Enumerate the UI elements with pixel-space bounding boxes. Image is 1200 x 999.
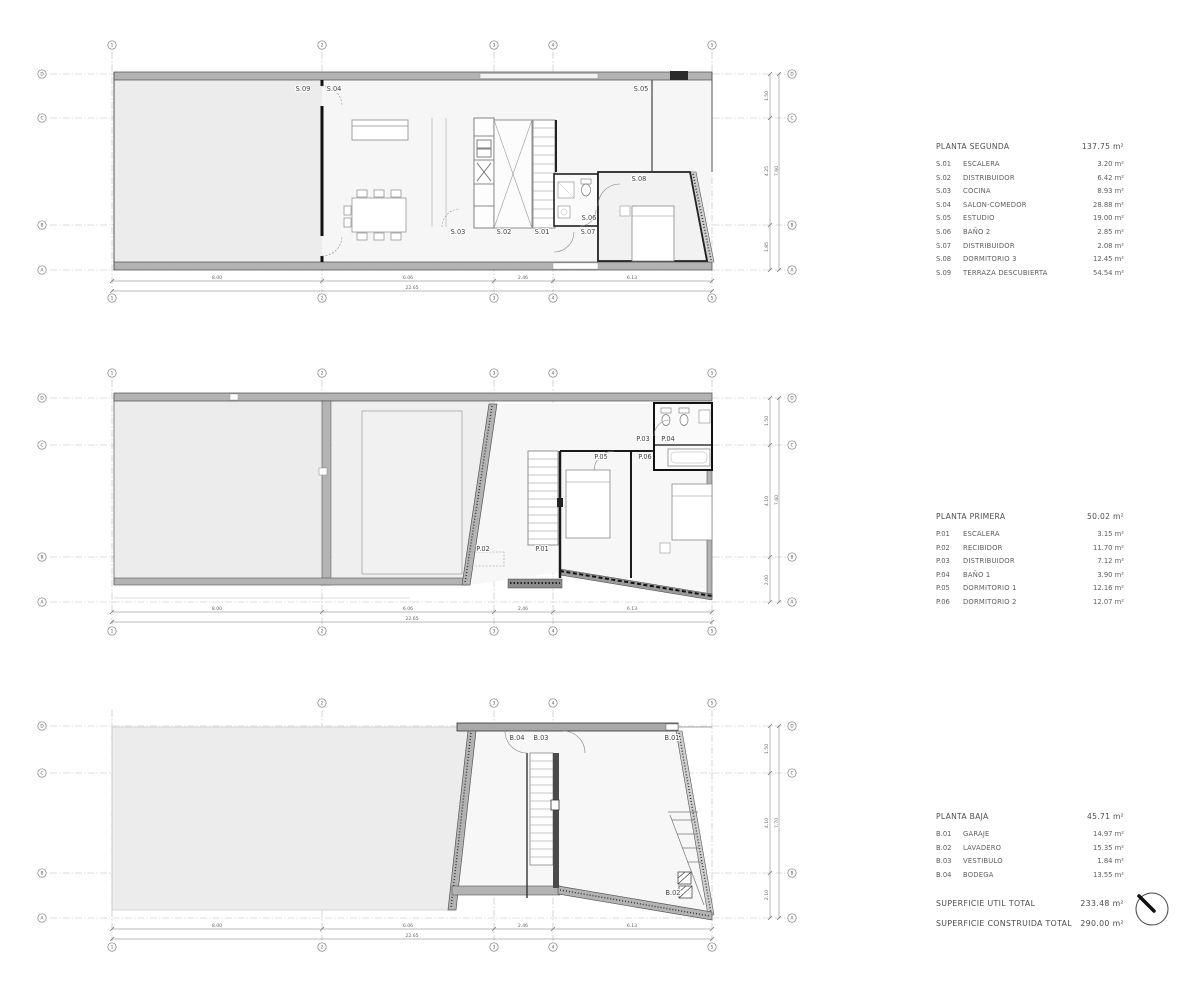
- legend-row: P.02RECIBIDOR11.70 m²: [936, 544, 1124, 558]
- legend-row-name: LAVADERO: [963, 844, 1093, 852]
- room-label-B.04: B.04: [509, 734, 524, 742]
- legend-row-name: SALON-COMEDOR: [963, 201, 1093, 209]
- roof-terrace-floor: [114, 393, 322, 585]
- legend-planta-primera: PLANTA PRIMERA 50.02 m² P.01ESCALERA3.15…: [936, 512, 1124, 612]
- grid-bubble-label-2: 2: [321, 629, 324, 635]
- dimension-label: 7.60: [774, 495, 780, 505]
- legend-row-code: B.01: [936, 830, 963, 838]
- legend-row-code: B.03: [936, 857, 963, 865]
- legend-row-name: BAÑO 1: [963, 571, 1097, 579]
- legend-row: S.06BAÑO 22.85 m²: [936, 228, 1124, 242]
- grid-bubble-label-A: A: [791, 600, 794, 606]
- courtyard-inner: [362, 411, 462, 574]
- legend-row: P.06DORMITORIO 212.07 m²: [936, 598, 1124, 612]
- bedroom-s08: [598, 172, 707, 261]
- grid-bubble-label-5: 5: [711, 629, 714, 635]
- plan-baja: B.04B.03B.01B.02 234512345DCBADCBA 8.006…: [38, 699, 796, 951]
- legend-row: P.04BAÑO 13.90 m²: [936, 571, 1124, 585]
- room-label-S.08: S.08: [632, 175, 647, 183]
- totals-block: SUPERFICIE UTIL TOTAL 233.48 m² SUPERFIC…: [936, 899, 1124, 939]
- legend-rows: B.01GARAJE14.97 m²B.02LAVADERO15.35 m²B.…: [936, 830, 1124, 884]
- legend-row: B.01GARAJE14.97 m²: [936, 830, 1124, 844]
- dimension-label: 2.46: [518, 606, 528, 612]
- grid-bubble-label-4: 4: [552, 945, 555, 951]
- legend-row-code: P.05: [936, 584, 963, 592]
- legend-row: P.03DISTRIBUIDOR7.12 m²: [936, 557, 1124, 571]
- total-util-label: SUPERFICIE UTIL TOTAL: [936, 899, 1035, 908]
- legend-row-area: 1.84 m²: [1097, 857, 1124, 865]
- north-arrow-icon: [1136, 893, 1168, 925]
- total-util-value: 233.48 m²: [1080, 899, 1124, 908]
- dimension-label: 6.13: [627, 275, 637, 281]
- room-label-B.01: B.01: [664, 734, 679, 742]
- legend-title: PLANTA PRIMERA: [936, 512, 1005, 521]
- room-label-P.03: P.03: [636, 435, 649, 443]
- grid-bubble-label-1: 1: [111, 296, 114, 302]
- legend-row-area: 2.08 m²: [1097, 242, 1124, 250]
- grid-bubble-label-5: 5: [711, 296, 714, 302]
- legend-row: S.01ESCALERA3.20 m²: [936, 160, 1124, 174]
- room-label-B.02: B.02: [665, 889, 680, 897]
- room-label-S.04: S.04: [327, 85, 342, 93]
- legend-row-name: GARAJE: [963, 830, 1093, 838]
- dimension-label: 7.60: [774, 166, 780, 176]
- legend-row-name: DISTRIBUIDOR: [963, 557, 1097, 565]
- legend-row-name: DISTRIBUIDOR: [963, 174, 1097, 182]
- dimension-label: 22.65: [405, 933, 418, 939]
- legend-row-name: BODEGA: [963, 871, 1093, 879]
- legend-title: PLANTA SEGUNDA: [936, 142, 1009, 151]
- legend-row-name: COCINA: [963, 187, 1097, 195]
- legend-row: S.09TERRAZA DESCUBIERTA54.54 m²: [936, 269, 1124, 283]
- grid-bubble-label-3: 3: [493, 945, 496, 951]
- total-construida-value: 290.00 m²: [1080, 919, 1124, 928]
- kitchen-counter: [474, 118, 494, 228]
- plan-primera: P.03P.04P.05P.06P.02P.01 1234512345DCBAD…: [38, 369, 796, 635]
- grid-bubble-label-B: B: [791, 223, 794, 229]
- room-label-S.07: S.07: [581, 228, 596, 236]
- legend-row-code: S.06: [936, 228, 963, 236]
- legend-row-area: 8.93 m²: [1097, 187, 1124, 195]
- legend-row-area: 19.00 m²: [1093, 214, 1124, 222]
- grid-bubble-label-2: 2: [321, 371, 324, 377]
- grid-bubble-label-A: A: [41, 600, 44, 606]
- room-label-S.09: S.09: [296, 85, 311, 93]
- dimension-label: 1.50: [764, 416, 770, 426]
- patio-floor: [112, 727, 470, 910]
- room-label-P.05: P.05: [594, 453, 607, 461]
- legend-row: S.08DORMITORIO 312.45 m²: [936, 255, 1124, 269]
- legend-row-area: 28.88 m²: [1093, 201, 1124, 209]
- dimension-label: 1.50: [764, 744, 770, 754]
- dimension-label: 8.00: [212, 923, 222, 929]
- legend-row-name: DISTRIBUIDOR: [963, 242, 1097, 250]
- legend-row: P.05DORMITORIO 112.16 m²: [936, 584, 1124, 598]
- legend-row-area: 54.54 m²: [1093, 269, 1124, 277]
- legend-row-area: 3.90 m²: [1097, 571, 1124, 579]
- legend-row-code: B.04: [936, 871, 963, 879]
- legend-row-code: S.02: [936, 174, 963, 182]
- legend-row-area: 3.15 m²: [1097, 530, 1124, 538]
- dimension-label: 6.06: [403, 923, 413, 929]
- legend-row-name: VESTIBULO: [963, 857, 1097, 865]
- legend-planta-segunda: PLANTA SEGUNDA 137.75 m² S.01ESCALERA3.2…: [936, 142, 1124, 282]
- grid-bubble-label-B: B: [41, 223, 44, 229]
- legend-row-area: 3.20 m²: [1097, 160, 1124, 168]
- grid-bubble-label-A: A: [791, 268, 794, 274]
- grid-bubble-label-5: 5: [711, 945, 714, 951]
- room-label-S.01: S.01: [535, 228, 550, 236]
- dimension-label: 4.25: [764, 166, 770, 176]
- legend-row-name: ESCALERA: [963, 530, 1097, 538]
- grid-bubble-label-3: 3: [493, 629, 496, 635]
- legend-row: S.07DISTRIBUIDOR2.08 m²: [936, 242, 1124, 256]
- dimension-label: 4.10: [764, 496, 770, 506]
- legend-total-area: 45.71 m²: [1087, 812, 1124, 821]
- legend-header: PLANTA SEGUNDA 137.75 m²: [936, 142, 1124, 151]
- total-util-row: SUPERFICIE UTIL TOTAL 233.48 m²: [936, 899, 1124, 919]
- grid-bubble-label-4: 4: [552, 43, 555, 49]
- legend-row: S.02DISTRIBUIDOR6.42 m²: [936, 174, 1124, 188]
- legend-row-code: S.07: [936, 242, 963, 250]
- room-label-P.02: P.02: [476, 545, 489, 553]
- legend-total-area: 137.75 m²: [1082, 142, 1124, 151]
- total-construida-row: SUPERFICIE CONSTRUIDA TOTAL 290.00 m²: [936, 919, 1124, 939]
- legend-row-code: P.04: [936, 571, 963, 579]
- grid-bubble-label-A: A: [791, 916, 794, 922]
- grid-bubble-label-3: 3: [493, 296, 496, 302]
- dimension-label: 6.13: [627, 606, 637, 612]
- legend-row-area: 15.35 m²: [1093, 844, 1124, 852]
- grid-bubble-label-B: B: [791, 871, 794, 877]
- grid-bubble-label-A: A: [41, 916, 44, 922]
- grid-bubble-label-4: 4: [552, 629, 555, 635]
- grid-bubble-label-C: C: [40, 443, 43, 449]
- grid-bubble-label-C: C: [790, 771, 793, 777]
- legend-row: B.04BODEGA13.55 m²: [936, 871, 1124, 885]
- room-label-S.06: S.06: [582, 214, 597, 222]
- grid-bubble-label-B: B: [791, 555, 794, 561]
- legend-row-code: S.08: [936, 255, 963, 263]
- legend-total-area: 50.02 m²: [1087, 512, 1124, 521]
- grid-bubble-label-1: 1: [111, 945, 114, 951]
- legend-row-code: S.04: [936, 201, 963, 209]
- grid-bubble-label-2: 2: [321, 945, 324, 951]
- grid-bubble-label-5: 5: [711, 43, 714, 49]
- grid-bubble-label-C: C: [40, 771, 43, 777]
- legend-rows: P.01ESCALERA3.15 m²P.02RECIBIDOR11.70 m²…: [936, 530, 1124, 612]
- dimension-label: 1.85: [764, 242, 770, 252]
- legend-row-name: DORMITORIO 3: [963, 255, 1093, 263]
- room-label-P.01: P.01: [535, 545, 548, 553]
- legend-row-name: DORMITORIO 1: [963, 584, 1093, 592]
- dimension-label: 6.06: [403, 275, 413, 281]
- legend-row-area: 11.70 m²: [1093, 544, 1124, 552]
- room-label-P.06: P.06: [638, 453, 651, 461]
- stair-void: [494, 120, 556, 228]
- room-label-B.03: B.03: [533, 734, 548, 742]
- plan-segunda: S.09S.04S.05S.03S.02S.01S.06S.07S.08 123…: [38, 41, 796, 302]
- dimension-label: 22.65: [405, 616, 418, 622]
- grid-bubble-label-1: 1: [111, 371, 114, 377]
- drawing-sheet: S.09S.04S.05S.03S.02S.01S.06S.07S.08 123…: [0, 0, 1200, 999]
- grid-bubble-label-2: 2: [321, 43, 324, 49]
- room-label-S.02: S.02: [497, 228, 512, 236]
- legend-row-name: DORMITORIO 2: [963, 598, 1093, 606]
- legend-row-code: P.03: [936, 557, 963, 565]
- legend-row: S.03COCINA8.93 m²: [936, 187, 1124, 201]
- legend-row-name: ESTUDIO: [963, 214, 1093, 222]
- grid-bubble-label-2: 2: [321, 701, 324, 707]
- grid-bubble-label-4: 4: [552, 371, 555, 377]
- legend-row-code: P.06: [936, 598, 963, 606]
- grid-bubble-label-1: 1: [111, 629, 114, 635]
- legend-row-area: 7.12 m²: [1097, 557, 1124, 565]
- legend-row-name: ESCALERA: [963, 160, 1097, 168]
- dimension-label: 2.46: [518, 923, 528, 929]
- total-construida-label: SUPERFICIE CONSTRUIDA TOTAL: [936, 919, 1072, 928]
- dimension-label: 6.06: [403, 606, 413, 612]
- dimension-label: 7.70: [774, 818, 780, 828]
- room-label-S.03: S.03: [451, 228, 466, 236]
- legend-row-code: P.02: [936, 544, 963, 552]
- legend-row-code: S.03: [936, 187, 963, 195]
- dimension-label: 2.46: [518, 275, 528, 281]
- dimension-label: 8.00: [212, 606, 222, 612]
- room-label-P.04: P.04: [661, 435, 674, 443]
- legend-row: P.01ESCALERA3.15 m²: [936, 530, 1124, 544]
- legend-title: PLANTA BAJA: [936, 812, 989, 821]
- legend-header: PLANTA BAJA 45.71 m²: [936, 812, 1124, 821]
- legend-row-name: RECIBIDOR: [963, 544, 1093, 552]
- grid-bubble-label-4: 4: [552, 296, 555, 302]
- legend-row: S.04SALON-COMEDOR28.88 m²: [936, 201, 1124, 215]
- legend-row-code: S.01: [936, 160, 963, 168]
- legend-planta-baja: PLANTA BAJA 45.71 m² B.01GARAJE14.97 m²B…: [936, 812, 1124, 884]
- grid-bubble-label-B: B: [41, 871, 44, 877]
- grid-bubble-label-C: C: [40, 116, 43, 122]
- legend-row-code: S.05: [936, 214, 963, 222]
- grid-bubble-label-3: 3: [493, 701, 496, 707]
- legend-row-name: TERRAZA DESCUBIERTA: [963, 269, 1093, 277]
- dimension-label: 6.13: [627, 923, 637, 929]
- grid-bubble-label-B: B: [41, 555, 44, 561]
- legend-row: B.03VESTIBULO1.84 m²: [936, 857, 1124, 871]
- grid-bubble-label-1: 1: [111, 43, 114, 49]
- legend-rows: S.01ESCALERA3.20 m²S.02DISTRIBUIDOR6.42 …: [936, 160, 1124, 282]
- room-label-S.05: S.05: [634, 85, 649, 93]
- dimension-label: 22.65: [405, 285, 418, 291]
- legend-row-area: 12.16 m²: [1093, 584, 1124, 592]
- dimension-label: 4.10: [764, 818, 770, 828]
- legend-row-area: 12.07 m²: [1093, 598, 1124, 606]
- dimension-label: 2.10: [764, 890, 770, 900]
- grid-bubble-label-C: C: [790, 443, 793, 449]
- legend-row-code: P.01: [936, 530, 963, 538]
- legend-row-area: 12.45 m²: [1093, 255, 1124, 263]
- legend-header: PLANTA PRIMERA 50.02 m²: [936, 512, 1124, 521]
- grid-bubble-label-C: C: [790, 116, 793, 122]
- legend-row-code: B.02: [936, 844, 963, 852]
- legend-row: S.05ESTUDIO19.00 m²: [936, 214, 1124, 228]
- sofa: [352, 120, 408, 140]
- grid-bubble-label-5: 5: [711, 371, 714, 377]
- legend-row-area: 6.42 m²: [1097, 174, 1124, 182]
- dimension-label: 8.00: [212, 275, 222, 281]
- grid-bubble-label-5: 5: [711, 701, 714, 707]
- legend-row-area: 13.55 m²: [1093, 871, 1124, 879]
- grid-bubble-label-A: A: [41, 268, 44, 274]
- terrace-floor: [114, 80, 322, 262]
- grid-bubble-label-4: 4: [552, 701, 555, 707]
- legend-row-area: 14.97 m²: [1093, 830, 1124, 838]
- grid-bubble-label-3: 3: [493, 371, 496, 377]
- dimension-label: 2.00: [764, 575, 770, 585]
- grid-bubble-label-2: 2: [321, 296, 324, 302]
- dimension-label: 1.50: [764, 91, 770, 101]
- grid-bubble-label-3: 3: [493, 43, 496, 49]
- legend-row-name: BAÑO 2: [963, 228, 1097, 236]
- legend-row-area: 2.85 m²: [1097, 228, 1124, 236]
- legend-row: B.02LAVADERO15.35 m²: [936, 844, 1124, 858]
- legend-row-code: S.09: [936, 269, 963, 277]
